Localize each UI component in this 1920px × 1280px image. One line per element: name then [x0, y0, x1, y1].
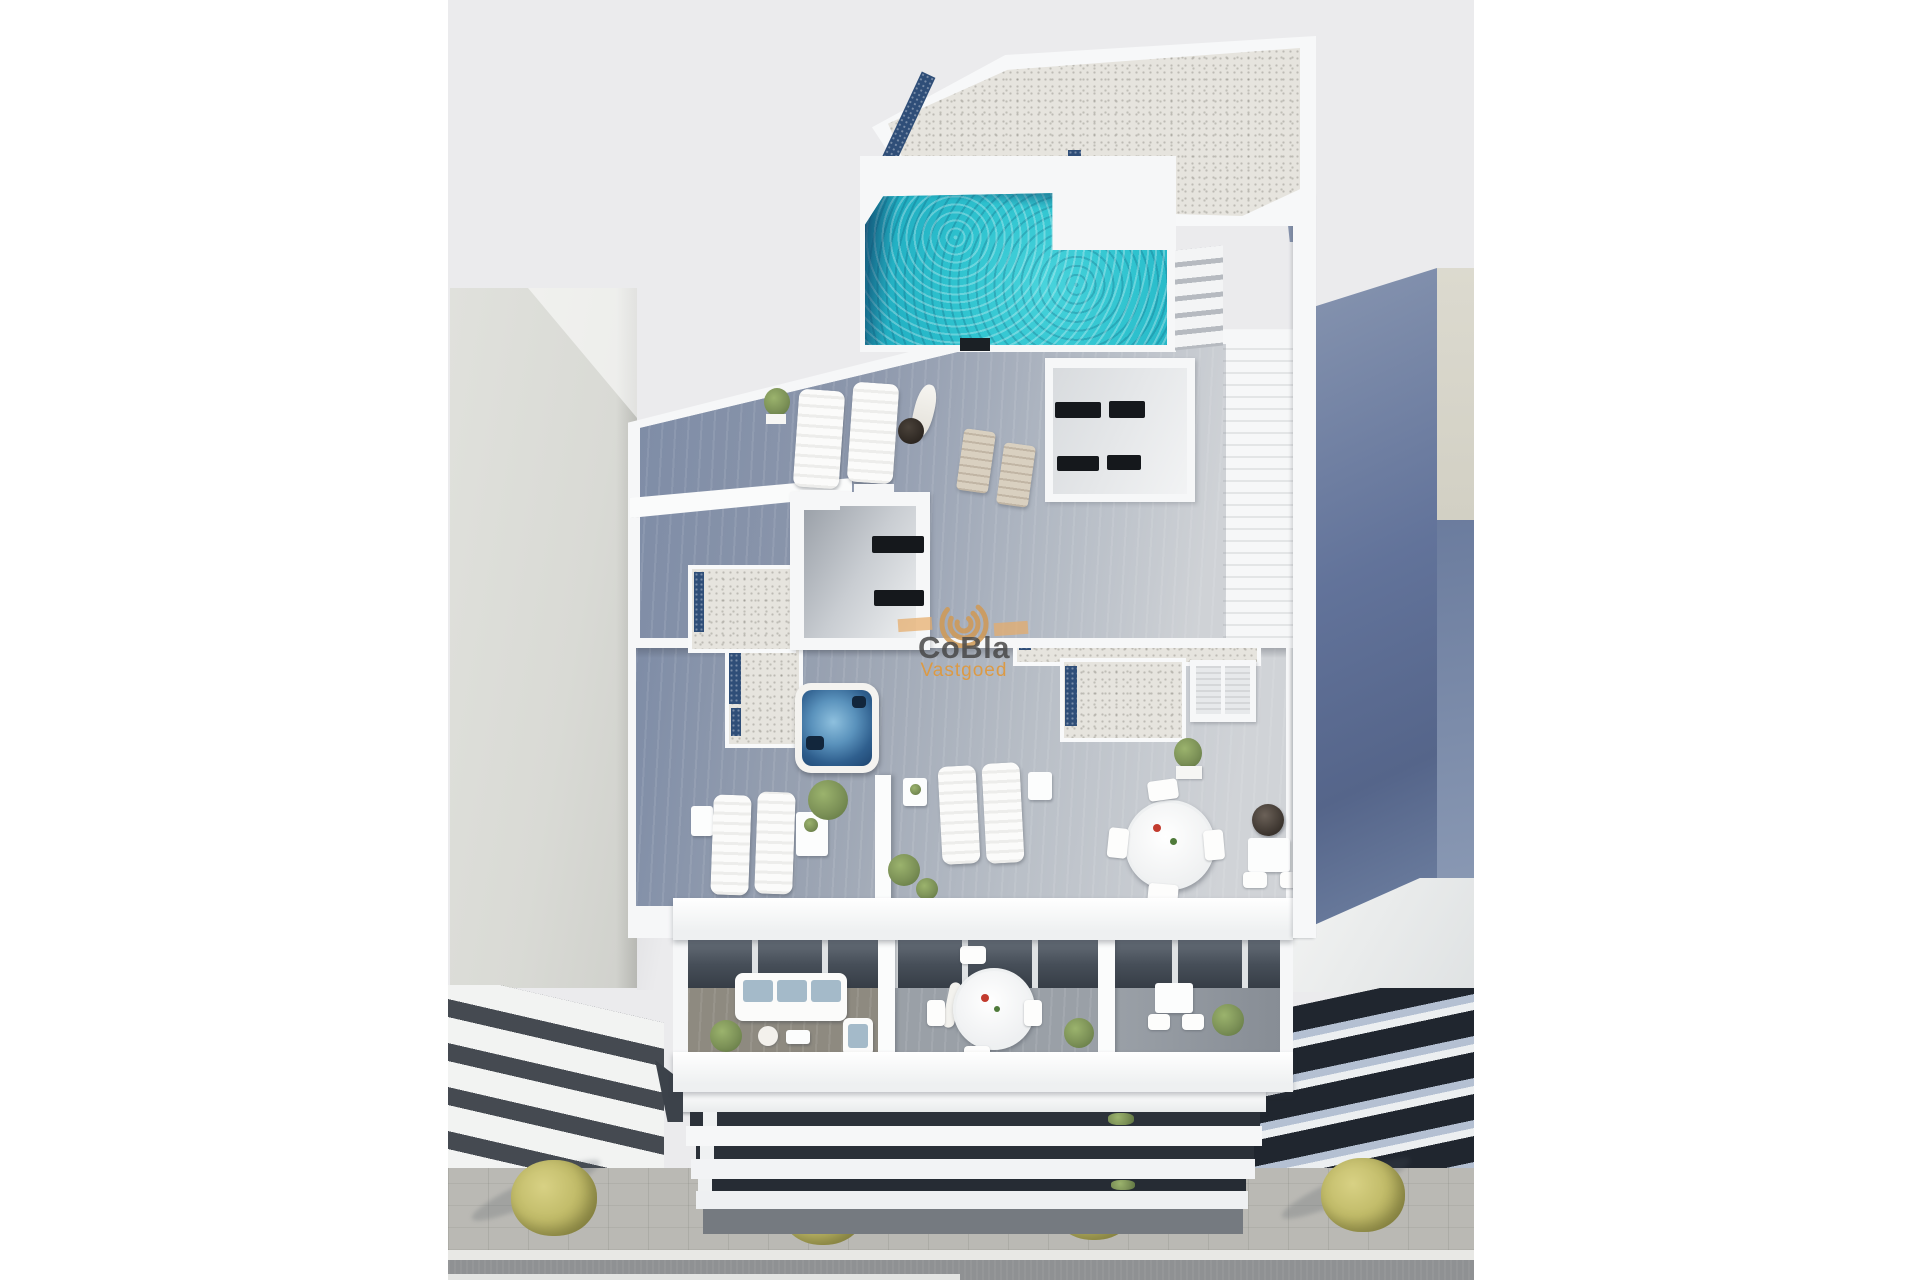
watermark: CoBla Vastgoed	[906, 594, 1022, 690]
bistro-table	[1155, 983, 1193, 1013]
street-tree	[511, 1160, 597, 1236]
balcony-front-parapet	[673, 1052, 1293, 1092]
lounger-foot-shelf	[854, 484, 894, 504]
core-window-slot	[1055, 402, 1101, 418]
terrace-plant	[888, 854, 920, 886]
street-tree	[1321, 1158, 1405, 1232]
window-shutter	[1196, 666, 1221, 714]
neighbor-right-roof-strip	[1437, 268, 1474, 522]
sun-lounger	[981, 762, 1024, 864]
balcony-plant	[1212, 1004, 1244, 1036]
table-decor-green	[994, 1006, 1000, 1012]
planter-pot	[766, 414, 786, 424]
deck-plant	[764, 388, 790, 416]
balcony-plant	[1064, 1018, 1094, 1048]
chair	[1243, 872, 1267, 888]
road-marking	[448, 1274, 960, 1280]
balcony-divider	[878, 930, 895, 1058]
facade-glass-gap	[702, 1179, 1246, 1191]
parasol-base	[898, 418, 924, 444]
pool-mat	[960, 338, 990, 351]
facade-window-mullion	[703, 1112, 717, 1126]
neighbor-building-left	[450, 288, 637, 988]
planter-pot	[1176, 766, 1202, 779]
facade-band	[696, 1191, 1248, 1209]
table-plant	[910, 784, 921, 795]
facade-planting	[1111, 1180, 1135, 1190]
gravel-planter-upper	[688, 565, 796, 653]
terrace-front-parapet	[673, 898, 1293, 940]
padded-lounger	[847, 382, 900, 485]
coffee-table	[786, 1030, 810, 1044]
lounger-foot-shelf	[800, 490, 840, 510]
window-shutter	[1225, 666, 1250, 714]
dining-table-round	[1125, 800, 1215, 890]
chair	[960, 946, 986, 964]
gravel-blue-strip	[731, 708, 741, 736]
terrace-plant	[808, 780, 848, 820]
facade-band	[691, 1159, 1255, 1179]
chair	[1024, 1000, 1042, 1026]
table-decor-red	[1153, 824, 1161, 832]
facade-band	[681, 1090, 1266, 1112]
core-window-slot	[1057, 456, 1099, 471]
balcony-divider	[1098, 930, 1115, 1058]
side-table	[1028, 772, 1052, 800]
facade-band	[686, 1126, 1262, 1146]
curb	[448, 1250, 1474, 1260]
table-decor-red	[981, 994, 989, 1002]
closed-parasol-dark	[1252, 804, 1284, 836]
gravel-blue-strip	[1065, 666, 1077, 726]
neighbor-building-right-wall	[1310, 268, 1437, 935]
sun-lounger	[937, 765, 980, 865]
chair	[1182, 1014, 1204, 1030]
sofa-cushion	[777, 980, 807, 1002]
core-window-slot	[1107, 455, 1141, 470]
chair	[1203, 829, 1226, 861]
facade-base-shadow	[703, 1208, 1243, 1234]
gravel-blue-strip	[694, 572, 704, 632]
sun-lounger	[710, 794, 751, 895]
neighbor-right-wall-lower	[1437, 520, 1474, 935]
sun-lounger	[754, 791, 796, 894]
jacuzzi-seat	[806, 736, 824, 750]
render-canvas: CoBla Vastgoed	[448, 0, 1474, 1280]
jacuzzi-seat	[852, 696, 866, 708]
balcony-plant	[710, 1020, 742, 1052]
chair	[1106, 827, 1129, 859]
topiary	[1174, 738, 1202, 768]
stair-core-b-wall	[1053, 368, 1187, 494]
roof-stairs	[1175, 245, 1223, 350]
side-table	[691, 806, 713, 836]
roof-right-wall	[1293, 195, 1316, 938]
watermark-subtitle: Vastgoed	[906, 660, 1022, 682]
gravel-blue-strip	[729, 648, 741, 704]
terrace-plant	[916, 878, 938, 900]
bistro-table	[1248, 838, 1290, 872]
padded-lounger	[793, 389, 846, 490]
gravel-roof-right-lower	[1060, 658, 1186, 742]
core-window-slot	[1109, 401, 1145, 418]
sofa-cushion	[743, 980, 773, 1002]
roof-walkway	[1223, 342, 1293, 638]
chair	[927, 1000, 945, 1026]
core-window-slot	[872, 536, 924, 553]
facade-glass-gap	[690, 1112, 1260, 1126]
table-decor-green	[1170, 838, 1177, 845]
facade-window-mullion	[698, 1179, 712, 1191]
armchair-cushion	[848, 1024, 868, 1048]
facade-planting	[1108, 1113, 1134, 1125]
chair	[1148, 1014, 1170, 1030]
facade-glass-gap	[696, 1146, 1254, 1159]
chair	[1147, 778, 1179, 802]
facade-window-mullion	[700, 1146, 714, 1159]
sofa-cushion	[811, 980, 841, 1002]
coffee-table	[758, 1026, 778, 1046]
terrace-plant	[804, 818, 818, 832]
